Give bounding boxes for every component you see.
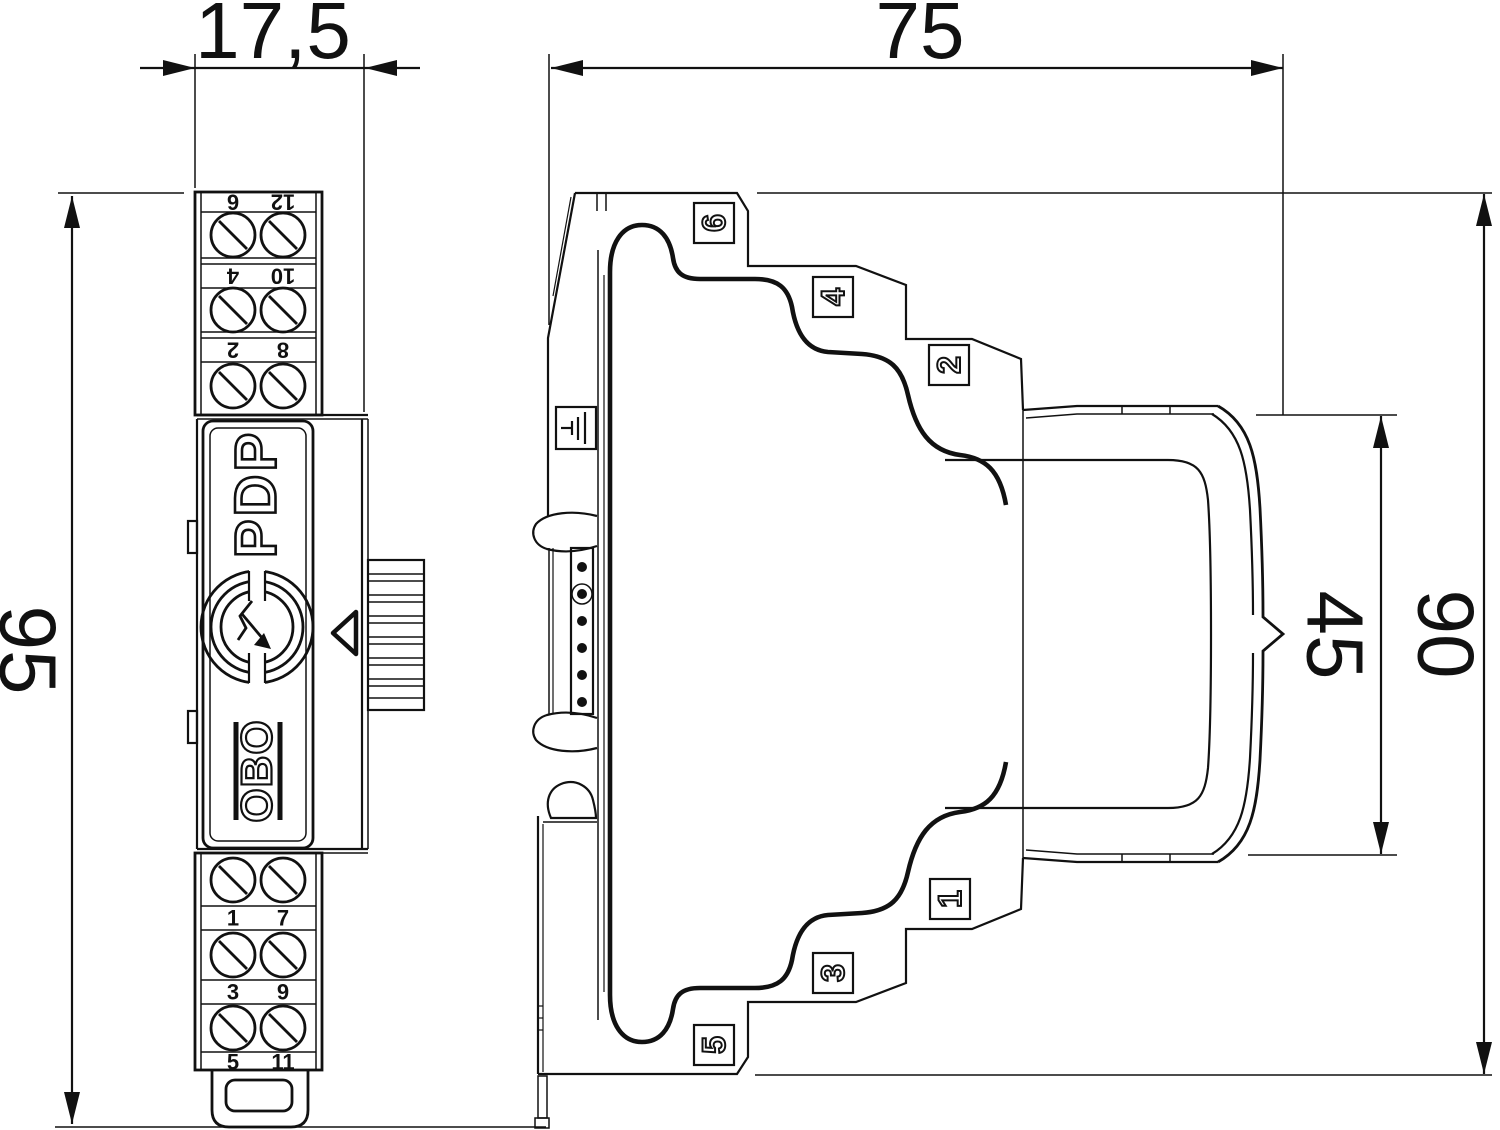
terminal-label: 3 (227, 980, 239, 1005)
din-clip-hook (533, 513, 597, 552)
arrowhead-icon (1373, 822, 1389, 854)
terminal-label: 10 (271, 264, 295, 289)
side-latch-bump (188, 711, 197, 743)
module-socket-outline (945, 460, 1211, 808)
terminal-label: 7 (277, 906, 289, 931)
dimension-depth-75: 75 (549, 0, 1283, 415)
arrowhead-icon (64, 1092, 80, 1124)
bottom-terminal-block: 1 7 3 9 5 11 (195, 853, 322, 1075)
terminal-label: 12 (271, 190, 295, 215)
bus-connector (571, 548, 593, 714)
label-tab (212, 1070, 308, 1127)
dimension-drawing: 17,5 75 95 45 90 (0, 0, 1500, 1130)
dim-width-value: 17,5 (195, 0, 351, 75)
device-body: PDP OBO (188, 415, 424, 853)
arrowhead-icon (1476, 194, 1492, 226)
dimension-plug-45: 45 (1248, 415, 1397, 855)
screw-terminal-icons (211, 213, 305, 408)
din-clip-hook (533, 713, 597, 752)
dim-plug-value: 45 (1291, 591, 1380, 680)
side-latch-bump (188, 521, 197, 553)
dim-depth-value: 75 (876, 0, 965, 75)
terminal-label: 1 (227, 906, 239, 931)
product-label: PDP (224, 430, 289, 558)
din-spring-clip (548, 782, 596, 818)
terminal-label: 2 (227, 338, 239, 363)
arrowhead-icon (1373, 416, 1389, 448)
triangle-pointer-icon (333, 612, 356, 654)
module-front-edge (1218, 406, 1283, 862)
arrowhead-icon (163, 60, 195, 76)
surge-protection-logo-icon (201, 569, 313, 685)
terminal-label: 9 (277, 980, 289, 1005)
brand-label: OBO (233, 719, 282, 822)
mount-foot (535, 1076, 549, 1128)
side-view: 6 4 2 1 3 5 (533, 193, 1283, 1128)
marker-label: 2 (931, 356, 967, 374)
arrowhead-icon (1251, 60, 1283, 76)
top-terminal-block: 6 12 4 10 2 8 (195, 190, 322, 416)
marker-label: 4 (815, 288, 851, 306)
dim-body-value: 90 (1402, 590, 1491, 679)
ribbed-connector (368, 560, 424, 710)
arrowhead-icon (1476, 1042, 1492, 1074)
arrowhead-icon (365, 60, 397, 76)
front-view: 6 12 4 10 2 8 (188, 190, 424, 1128)
arrowhead-icon (64, 196, 80, 228)
technical-drawing-page: 17,5 75 95 45 90 (0, 0, 1500, 1130)
marker-label: 6 (696, 214, 732, 232)
terminal-marker-squares: 6 4 2 1 3 5 (694, 203, 970, 1065)
terminal-label: 4 (226, 264, 239, 289)
terminal-label: 8 (277, 338, 289, 363)
earth-ground-icon (556, 407, 596, 449)
dim-height-value: 95 (0, 606, 73, 695)
marker-label: 1 (932, 890, 968, 908)
brand-mark: OBO (233, 719, 282, 822)
marker-label: 3 (815, 964, 851, 982)
din-rail-mount (533, 193, 606, 1128)
screw-terminal-icons (211, 858, 305, 1050)
bus-contact-pins (572, 562, 592, 707)
terminal-label: 6 (227, 190, 239, 215)
terminal-label: 11 (271, 1050, 294, 1075)
arrowhead-icon (551, 60, 583, 76)
terminal-label: 5 (227, 1050, 239, 1075)
marker-label: 5 (696, 1036, 732, 1054)
